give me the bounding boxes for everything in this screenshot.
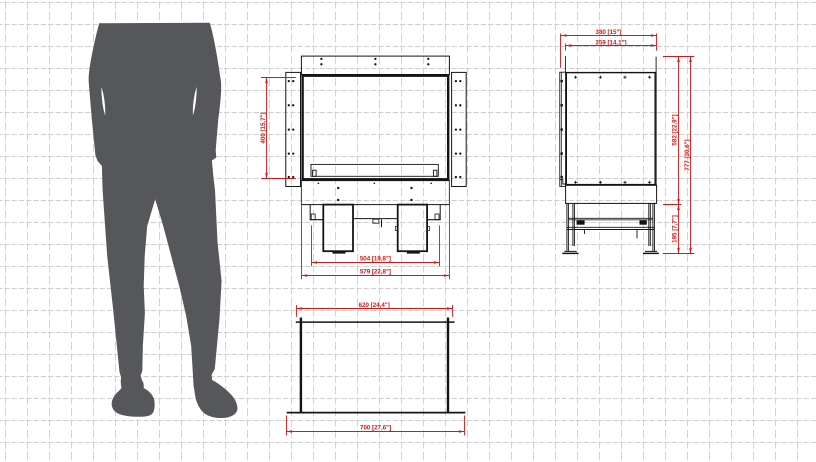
svg-text:620 [24,4"]: 620 [24,4"]: [359, 302, 390, 309]
svg-text:504 [19,8"]: 504 [19,8"]: [360, 256, 391, 263]
svg-text:400 [15,7"]: 400 [15,7"]: [260, 112, 267, 143]
svg-text:700 [27,6"]: 700 [27,6"]: [360, 425, 391, 432]
svg-text:195 [7,7"]: 195 [7,7"]: [672, 215, 679, 243]
svg-text:359 [14,1"]: 359 [14,1"]: [595, 39, 626, 46]
svg-text:777 [30,6"]: 777 [30,6"]: [684, 139, 691, 170]
svg-text:380 [15"]: 380 [15"]: [596, 29, 622, 36]
svg-text:579 [22,8"]: 579 [22,8"]: [360, 269, 391, 276]
svg-text:582 [22,9"]: 582 [22,9"]: [672, 114, 679, 145]
